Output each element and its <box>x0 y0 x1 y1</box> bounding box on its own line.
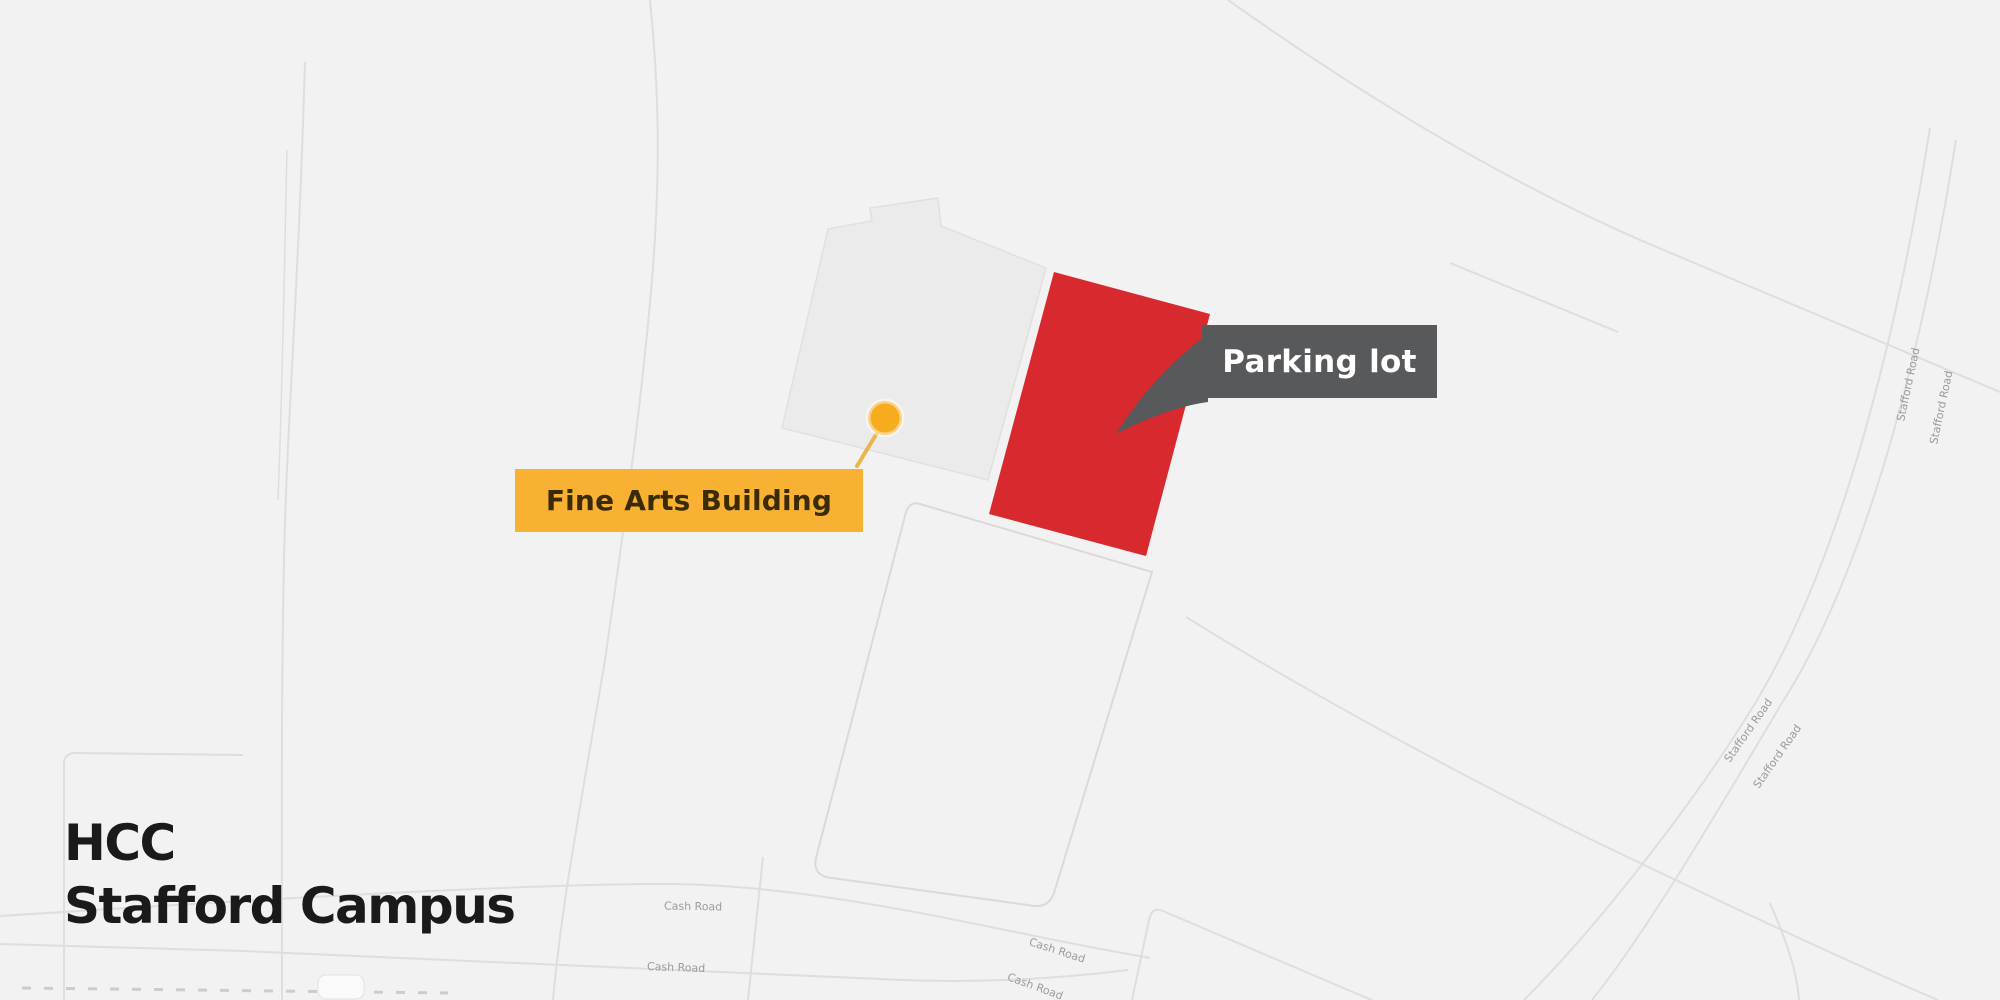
parking-lot-label: Parking lot <box>1202 325 1437 398</box>
small-building-outline <box>318 975 364 999</box>
fine-arts-building-label: Fine Arts Building <box>515 469 863 532</box>
boundary-dashed-line <box>22 988 448 993</box>
fine-arts-building-label-text: Fine Arts Building <box>546 484 832 517</box>
road-northeast-spur <box>1450 263 1618 332</box>
map-title-line2: Stafford Campus <box>64 875 515 938</box>
road-stafford-1 <box>1524 128 1930 1000</box>
fine-arts-building-shape <box>782 198 1046 480</box>
parcel-outline <box>815 503 1152 906</box>
campus-map: Cash Road Cash Road Cash Road Cash Road … <box>0 0 2000 1000</box>
location-pin-icon <box>868 401 902 435</box>
parking-lot-label-text: Parking lot <box>1222 344 1416 380</box>
road-corner-south <box>1132 910 1372 1000</box>
road-label-cash-road: Cash Road <box>664 899 722 913</box>
road-left-vertical-2 <box>278 150 287 500</box>
road-southeast-diagonal <box>1186 617 1938 1000</box>
road-label-cash-road: Cash Road <box>647 960 706 975</box>
road-short-vertical <box>748 857 763 1000</box>
road-stafford-2 <box>1592 140 1956 1000</box>
map-title-line1: HCC <box>64 812 515 875</box>
road-cash-lower <box>0 944 1128 981</box>
road-bottom-right-arc <box>1770 903 1799 1000</box>
map-title: HCC Stafford Campus <box>64 812 515 938</box>
